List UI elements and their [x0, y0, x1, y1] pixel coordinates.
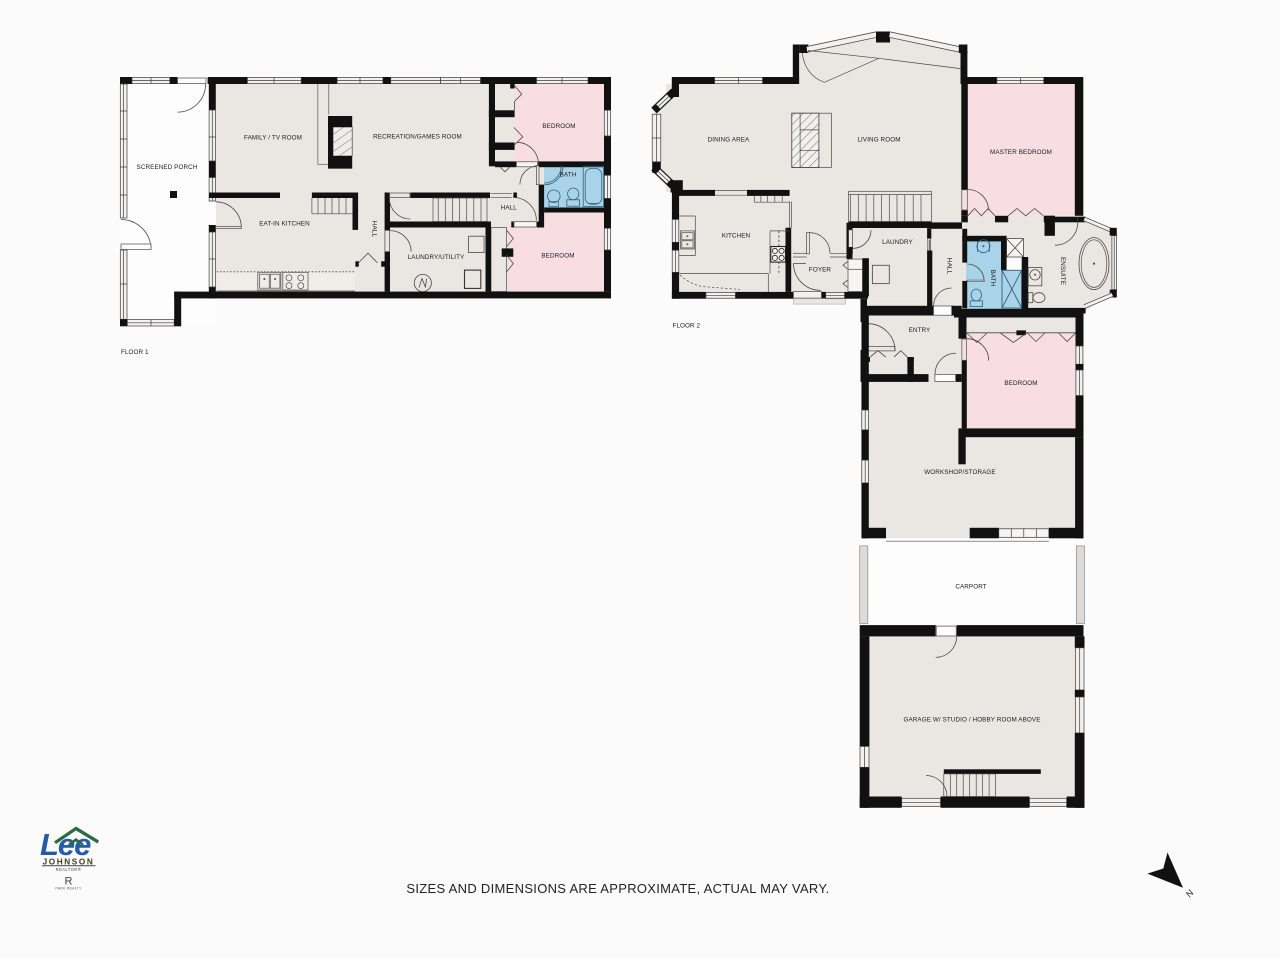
svg-text:KITCHEN: KITCHEN — [722, 233, 751, 240]
svg-text:REALTOR®: REALTOR® — [56, 867, 82, 872]
svg-text:SIZES AND DIMENSIONS ARE APPRO: SIZES AND DIMENSIONS ARE APPROXIMATE, AC… — [406, 881, 829, 896]
svg-text:HALL: HALL — [501, 205, 518, 212]
svg-text:FLOOR 2: FLOOR 2 — [673, 323, 701, 330]
svg-text:LAUNDRY/UTILITY: LAUNDRY/UTILITY — [408, 254, 465, 261]
svg-text:LIVING ROOM: LIVING ROOM — [857, 137, 900, 144]
svg-text:MASTER BEDROOM: MASTER BEDROOM — [990, 149, 1052, 156]
svg-text:EAT-IN KITCHEN: EAT-IN KITCHEN — [259, 221, 310, 228]
svg-text:BEDROOM: BEDROOM — [1004, 380, 1037, 387]
svg-text:DINING AREA: DINING AREA — [708, 137, 750, 144]
svg-text:FOYER: FOYER — [809, 267, 832, 274]
svg-text:RECREATION/GAMES ROOM: RECREATION/GAMES ROOM — [373, 134, 462, 141]
svg-text:HALL: HALL — [370, 221, 377, 238]
svg-text:BEDROOM: BEDROOM — [541, 253, 574, 260]
svg-text:HALL: HALL — [946, 258, 953, 275]
svg-text:PARK REALTY: PARK REALTY — [55, 887, 82, 891]
svg-text:CARPORT: CARPORT — [955, 584, 986, 591]
svg-text:FLOOR 1: FLOOR 1 — [121, 349, 149, 356]
svg-text:BATH: BATH — [560, 172, 577, 179]
svg-text:WORKSHOP/STORAGE: WORKSHOP/STORAGE — [924, 469, 995, 476]
svg-text:ENTRY: ENTRY — [909, 327, 931, 334]
svg-text:BATH: BATH — [989, 270, 996, 287]
svg-text:SCREENED PORCH: SCREENED PORCH — [137, 164, 198, 171]
svg-text:GARAGE W/ STUDIO / HOBBY ROOM: GARAGE W/ STUDIO / HOBBY ROOM ABOVE — [903, 717, 1040, 724]
svg-text:BEDROOM: BEDROOM — [542, 123, 575, 130]
svg-text:FAMILY / TV ROOM: FAMILY / TV ROOM — [244, 135, 302, 142]
svg-text:ENSUITE: ENSUITE — [1059, 257, 1066, 285]
svg-text:LAUNDRY: LAUNDRY — [882, 239, 913, 246]
svg-text:JOHNSON: JOHNSON — [43, 858, 95, 867]
